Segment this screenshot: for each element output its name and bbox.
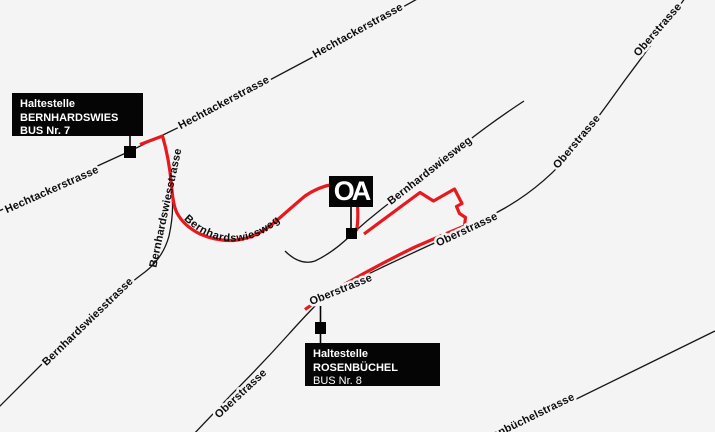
stop-callout-rosenbuechel: Haltestelle ROSENBÜCHEL BUS Nr. 8: [305, 343, 440, 386]
street-label-rosenbuechelstrasse: Rosenbüchelstrasse: [471, 391, 576, 432]
street-bernhardswiesweg: [285, 101, 524, 262]
street-label-hechtackerstrasse-left: Hechtackerstrasse: [3, 164, 100, 216]
street-label-hechtackerstrasse-mid: Hechtackerstrasse: [176, 74, 271, 132]
street-label-oberstrasse-2: Oberstrasse: [308, 272, 374, 308]
stop-callout-line: Haltestelle: [313, 348, 432, 362]
street-label-bernhardswiesstrasse-sw: Bernhardswiesstrasse: [40, 275, 136, 368]
street-label-bernhardswiesweg-upper: Bernhardswiesweg: [385, 134, 474, 207]
street-label-oberstrasse-4: Oberstrasse: [551, 113, 603, 172]
transit-map: Hechtackerstrasse Hechtackerstrasse Hech…: [0, 0, 715, 432]
street-label-oberstrasse-3: Oberstrasse: [434, 210, 499, 249]
oa-logo: OA: [329, 176, 373, 207]
stop-callout-bus: BUS Nr. 7: [20, 125, 135, 139]
stop-callout-line: Haltestelle: [20, 98, 135, 112]
street-label-bernhardswiesweg-curved: Bernhardswiesweg: [182, 213, 282, 245]
street-rosenbuechelstrasse: [452, 331, 715, 432]
street-label-hechtackerstrasse-top: Hechtackerstrasse: [311, 1, 405, 61]
stop-callout-bus: BUS Nr. 8: [313, 375, 432, 389]
rosenbuechel-stop-marker: [315, 322, 326, 334]
street-label-oberstrasse-1: Oberstrasse: [213, 367, 270, 421]
street-label-bernhardswiesstrasse-vertical: Bernhardswiesstrasse: [147, 147, 184, 268]
stop-callout-name: BERNHARDSWIES: [20, 112, 135, 126]
oa-building-marker: [346, 228, 357, 239]
bernhardswies-stop-marker: [124, 146, 136, 158]
stop-callout-bernhardswies: Haltestelle BERNHARDSWIES BUS Nr. 7: [12, 93, 143, 136]
stop-callout-name: ROSENBÜCHEL: [313, 362, 432, 376]
street-label-oberstrasse-5: Oberstrasse: [632, 1, 685, 59]
